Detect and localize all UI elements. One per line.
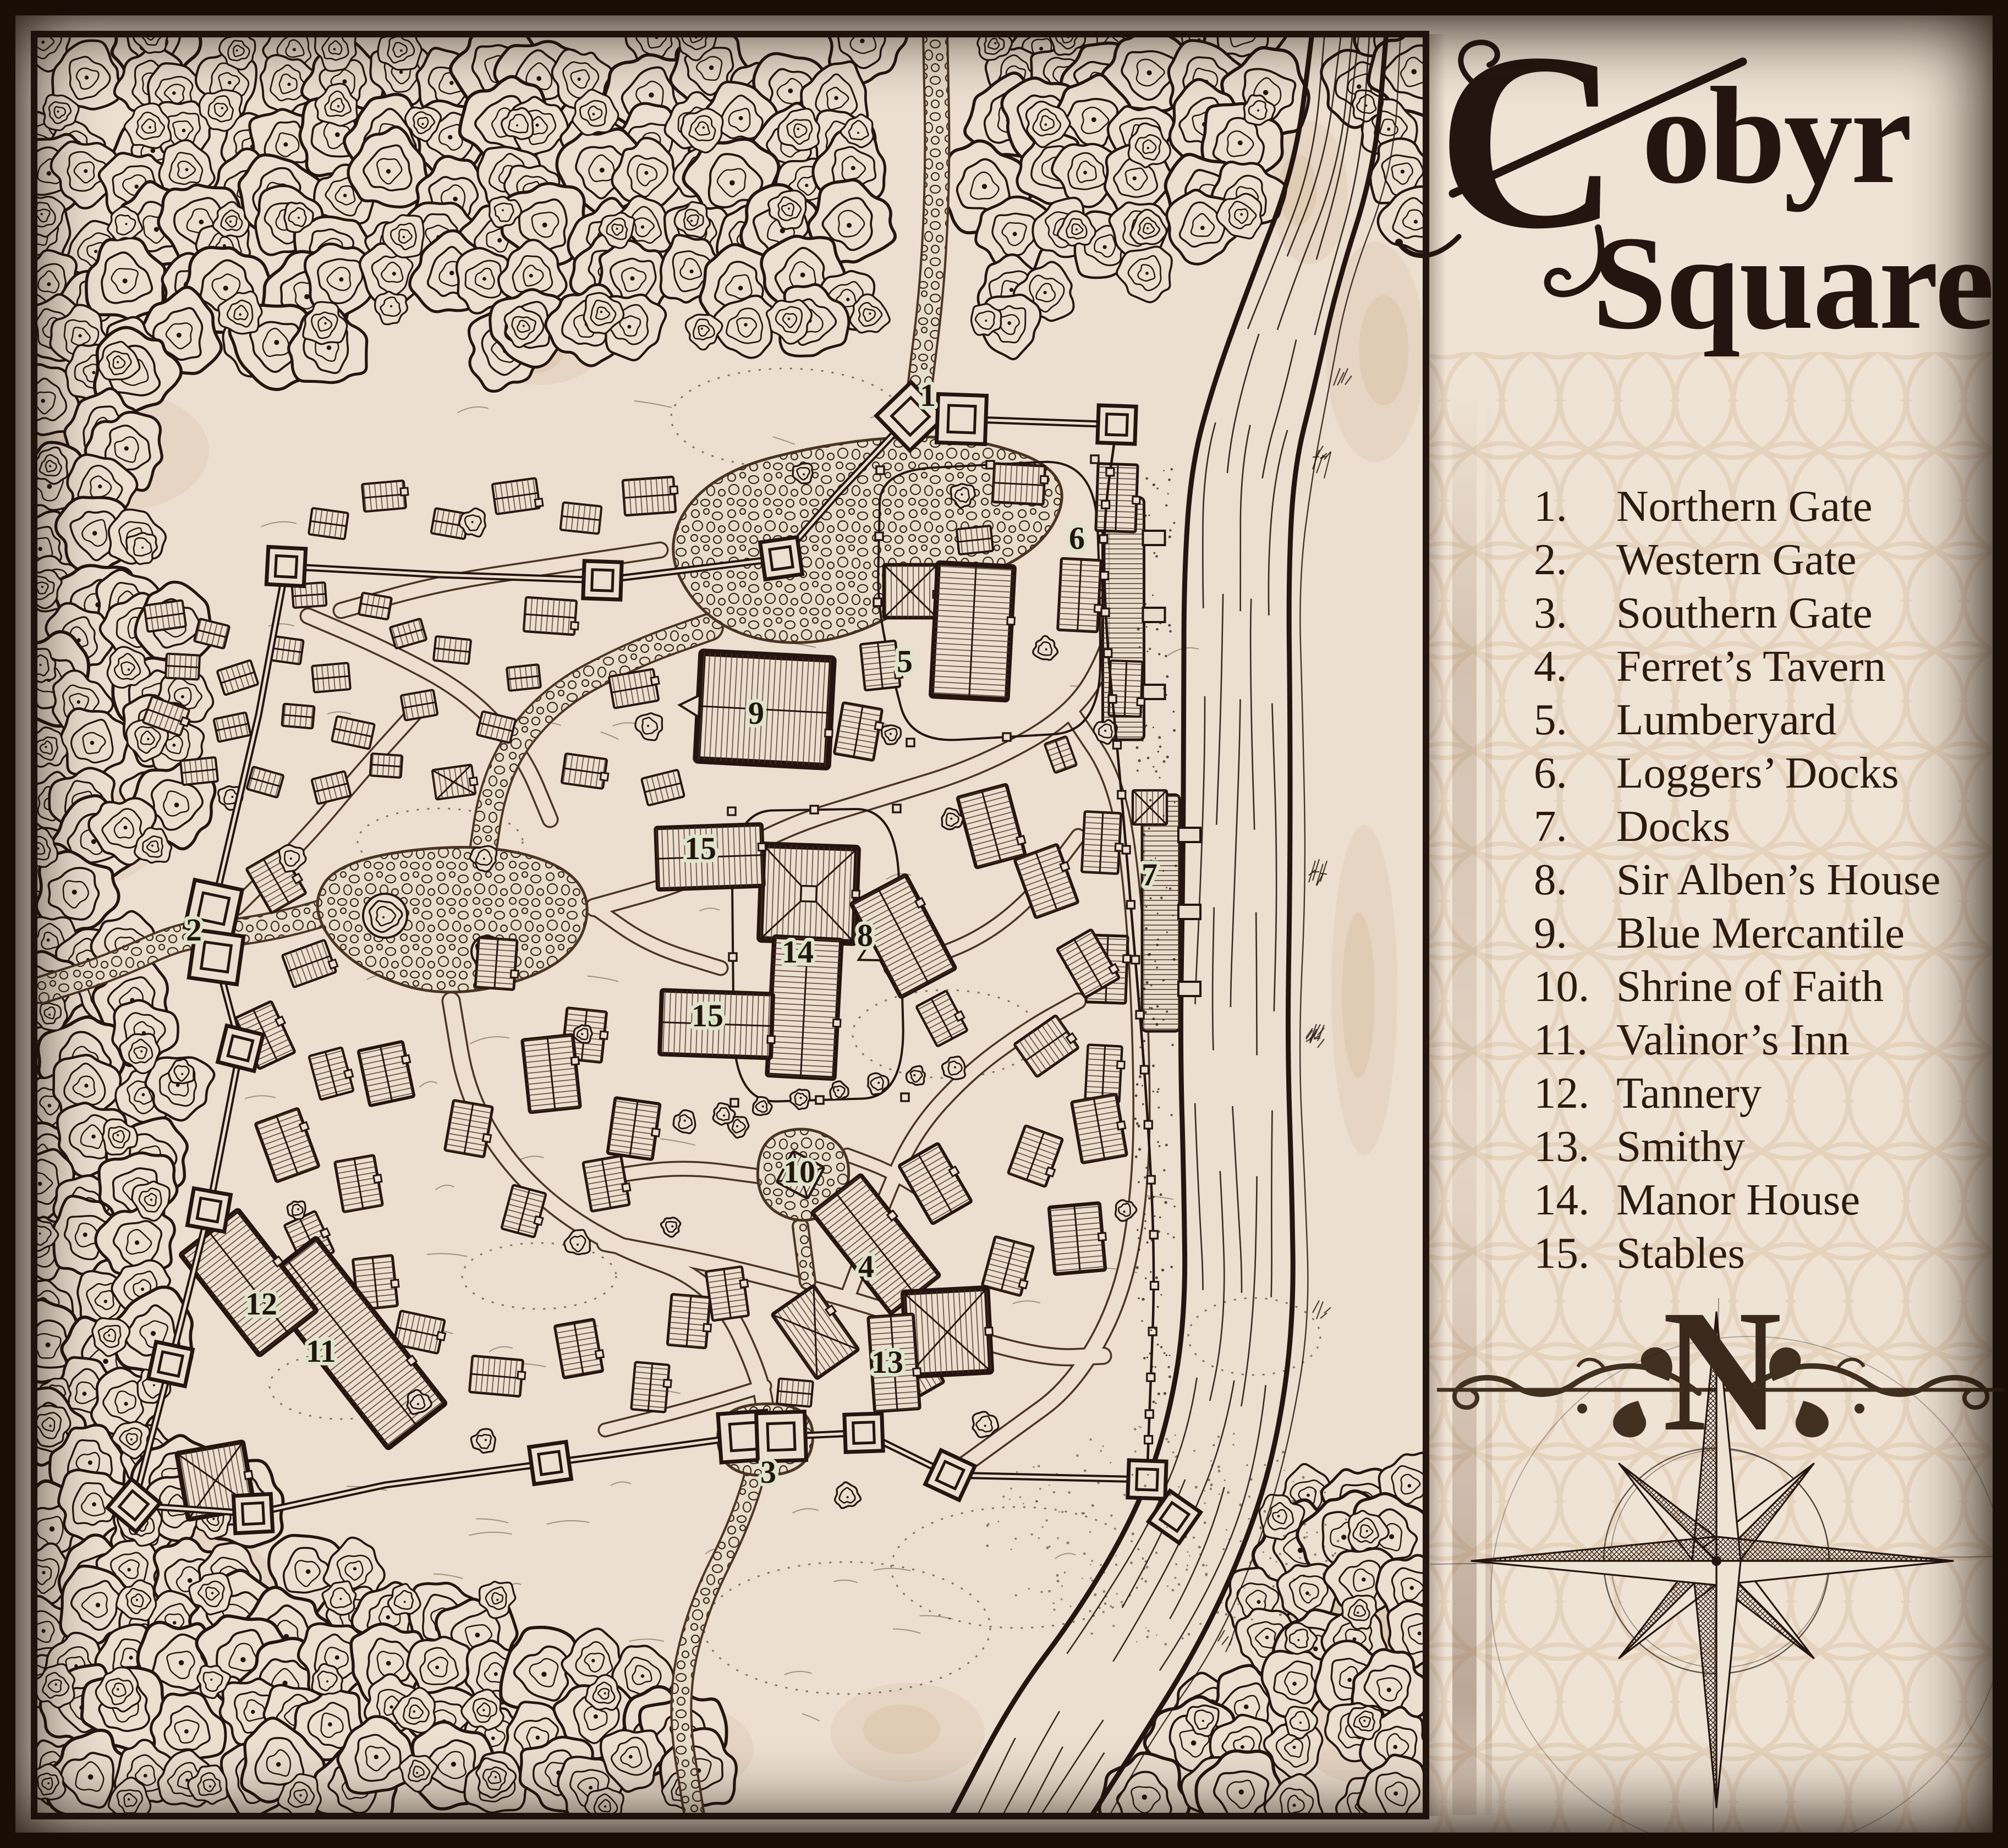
legend-label: Blue Mercantile [1616,908,1905,958]
legend-item-6: 6.Loggers’ Docks [1534,746,1990,800]
legend-item-14: 14.Manor House [1534,1173,1990,1226]
north-letter: N [1663,1283,1782,1458]
legend-label: Docks [1616,801,1730,851]
legend-item-13: 13.Smithy [1534,1120,1990,1173]
legend-item-1: 1.Northern Gate [1534,480,1990,533]
fantasy-town-map-poster: 1 2 3 4 5 6 7 8 9 10 11 12 13 14 15 15 C… [0,0,2008,1848]
legend-item-5: 5.Lumberyard [1534,693,1990,746]
legend-label: Tannery [1616,1068,1762,1118]
legend-label: Valinor’s Inn [1616,1015,1850,1064]
legend-item-12: 12.Tannery [1534,1066,1990,1120]
legend-num: 14. [1534,1173,1611,1226]
legend-num: 6. [1534,746,1611,800]
legend-label: Northern Gate [1616,481,1873,531]
legend-num: 13. [1534,1120,1611,1173]
legend-label: Shrine of Faith [1616,961,1884,1011]
legend-label: Loggers’ Docks [1616,748,1899,798]
legend-item-7: 7.Docks [1534,800,1990,853]
legend-item-9: 9.Blue Mercantile [1534,906,1990,960]
legend-num: 3. [1534,586,1611,640]
legend-label: Smithy [1616,1121,1745,1171]
legend-label: Sir Alben’s House [1616,855,1941,904]
legend-num: 9. [1534,906,1611,960]
legend-item-11: 11.Valinor’s Inn [1534,1013,1990,1066]
legend-num: 1. [1534,480,1611,533]
legend-num: 8. [1534,853,1611,906]
legend-item-2: 2.Western Gate [1534,533,1990,586]
legend-label: Manor House [1616,1175,1860,1224]
page-title-line2: Square [1592,216,1993,350]
legend-list: 1.Northern Gate 2.Western Gate 3.Souther… [1534,480,1990,1280]
legend-item-3: 3.Southern Gate [1534,586,1990,640]
legend-label: Southern Gate [1616,588,1873,637]
legend-label: Ferret’s Tavern [1616,641,1886,691]
legend-label: Stables [1616,1228,1745,1278]
legend-num: 12. [1534,1066,1611,1120]
legend-num: 2. [1534,533,1611,586]
legend-item-15: 15.Stables [1534,1226,1990,1280]
legend-num: 5. [1534,693,1611,746]
legend-num: 10. [1534,960,1611,1013]
legend-num: 4. [1534,640,1611,693]
legend-num: 11. [1534,1013,1611,1066]
legend-label: Western Gate [1616,535,1857,584]
legend-num: 15. [1534,1226,1611,1280]
legend-num: 7. [1534,800,1611,853]
legend-item-8: 8.Sir Alben’s House [1534,853,1990,906]
page-title-line1: obyr [1642,66,1910,205]
legend-label: Lumberyard [1616,695,1836,744]
legend-item-10: 10.Shrine of Faith [1534,960,1990,1013]
legend-item-4: 4.Ferret’s Tavern [1534,640,1990,693]
